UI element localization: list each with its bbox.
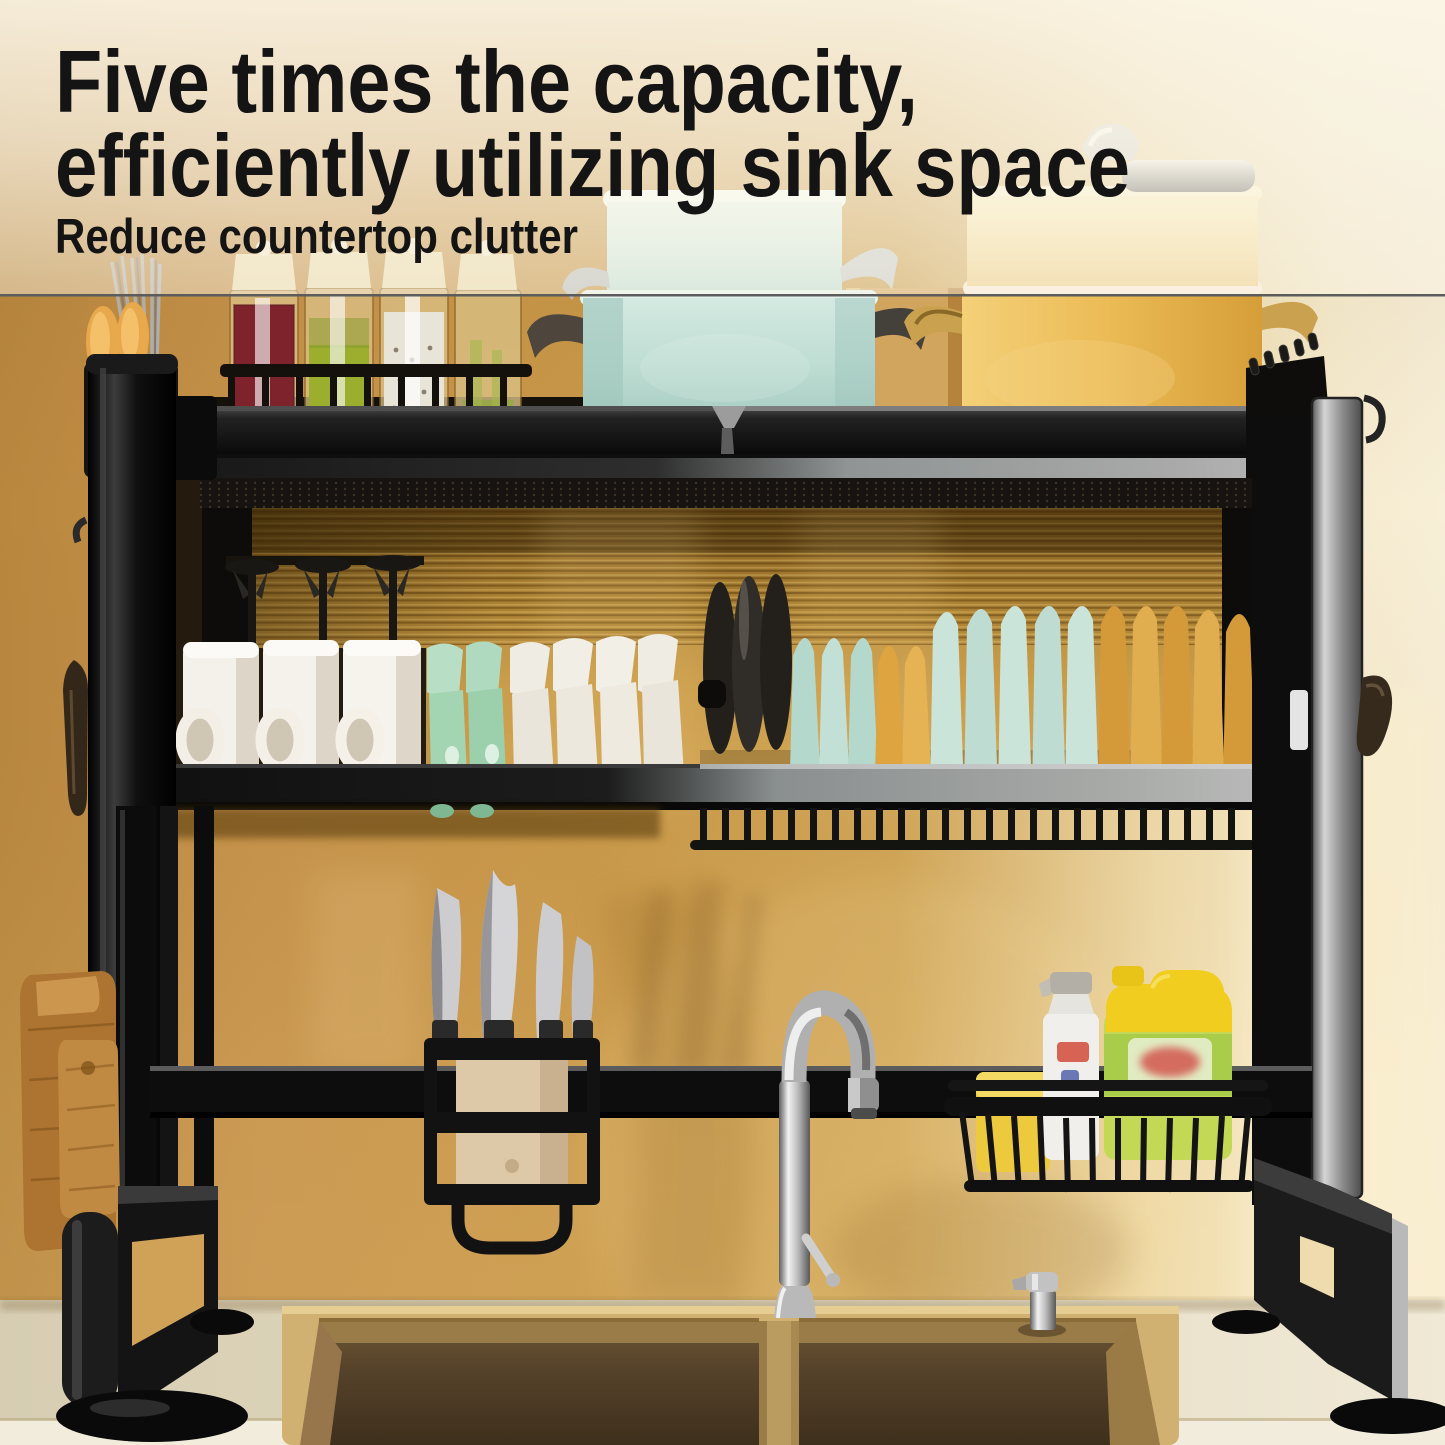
svg-text:efficiently utilizing sink spa: efficiently utilizing sink space bbox=[55, 116, 1130, 215]
svg-text:Reduce countertop clutter: Reduce countertop clutter bbox=[55, 210, 578, 264]
